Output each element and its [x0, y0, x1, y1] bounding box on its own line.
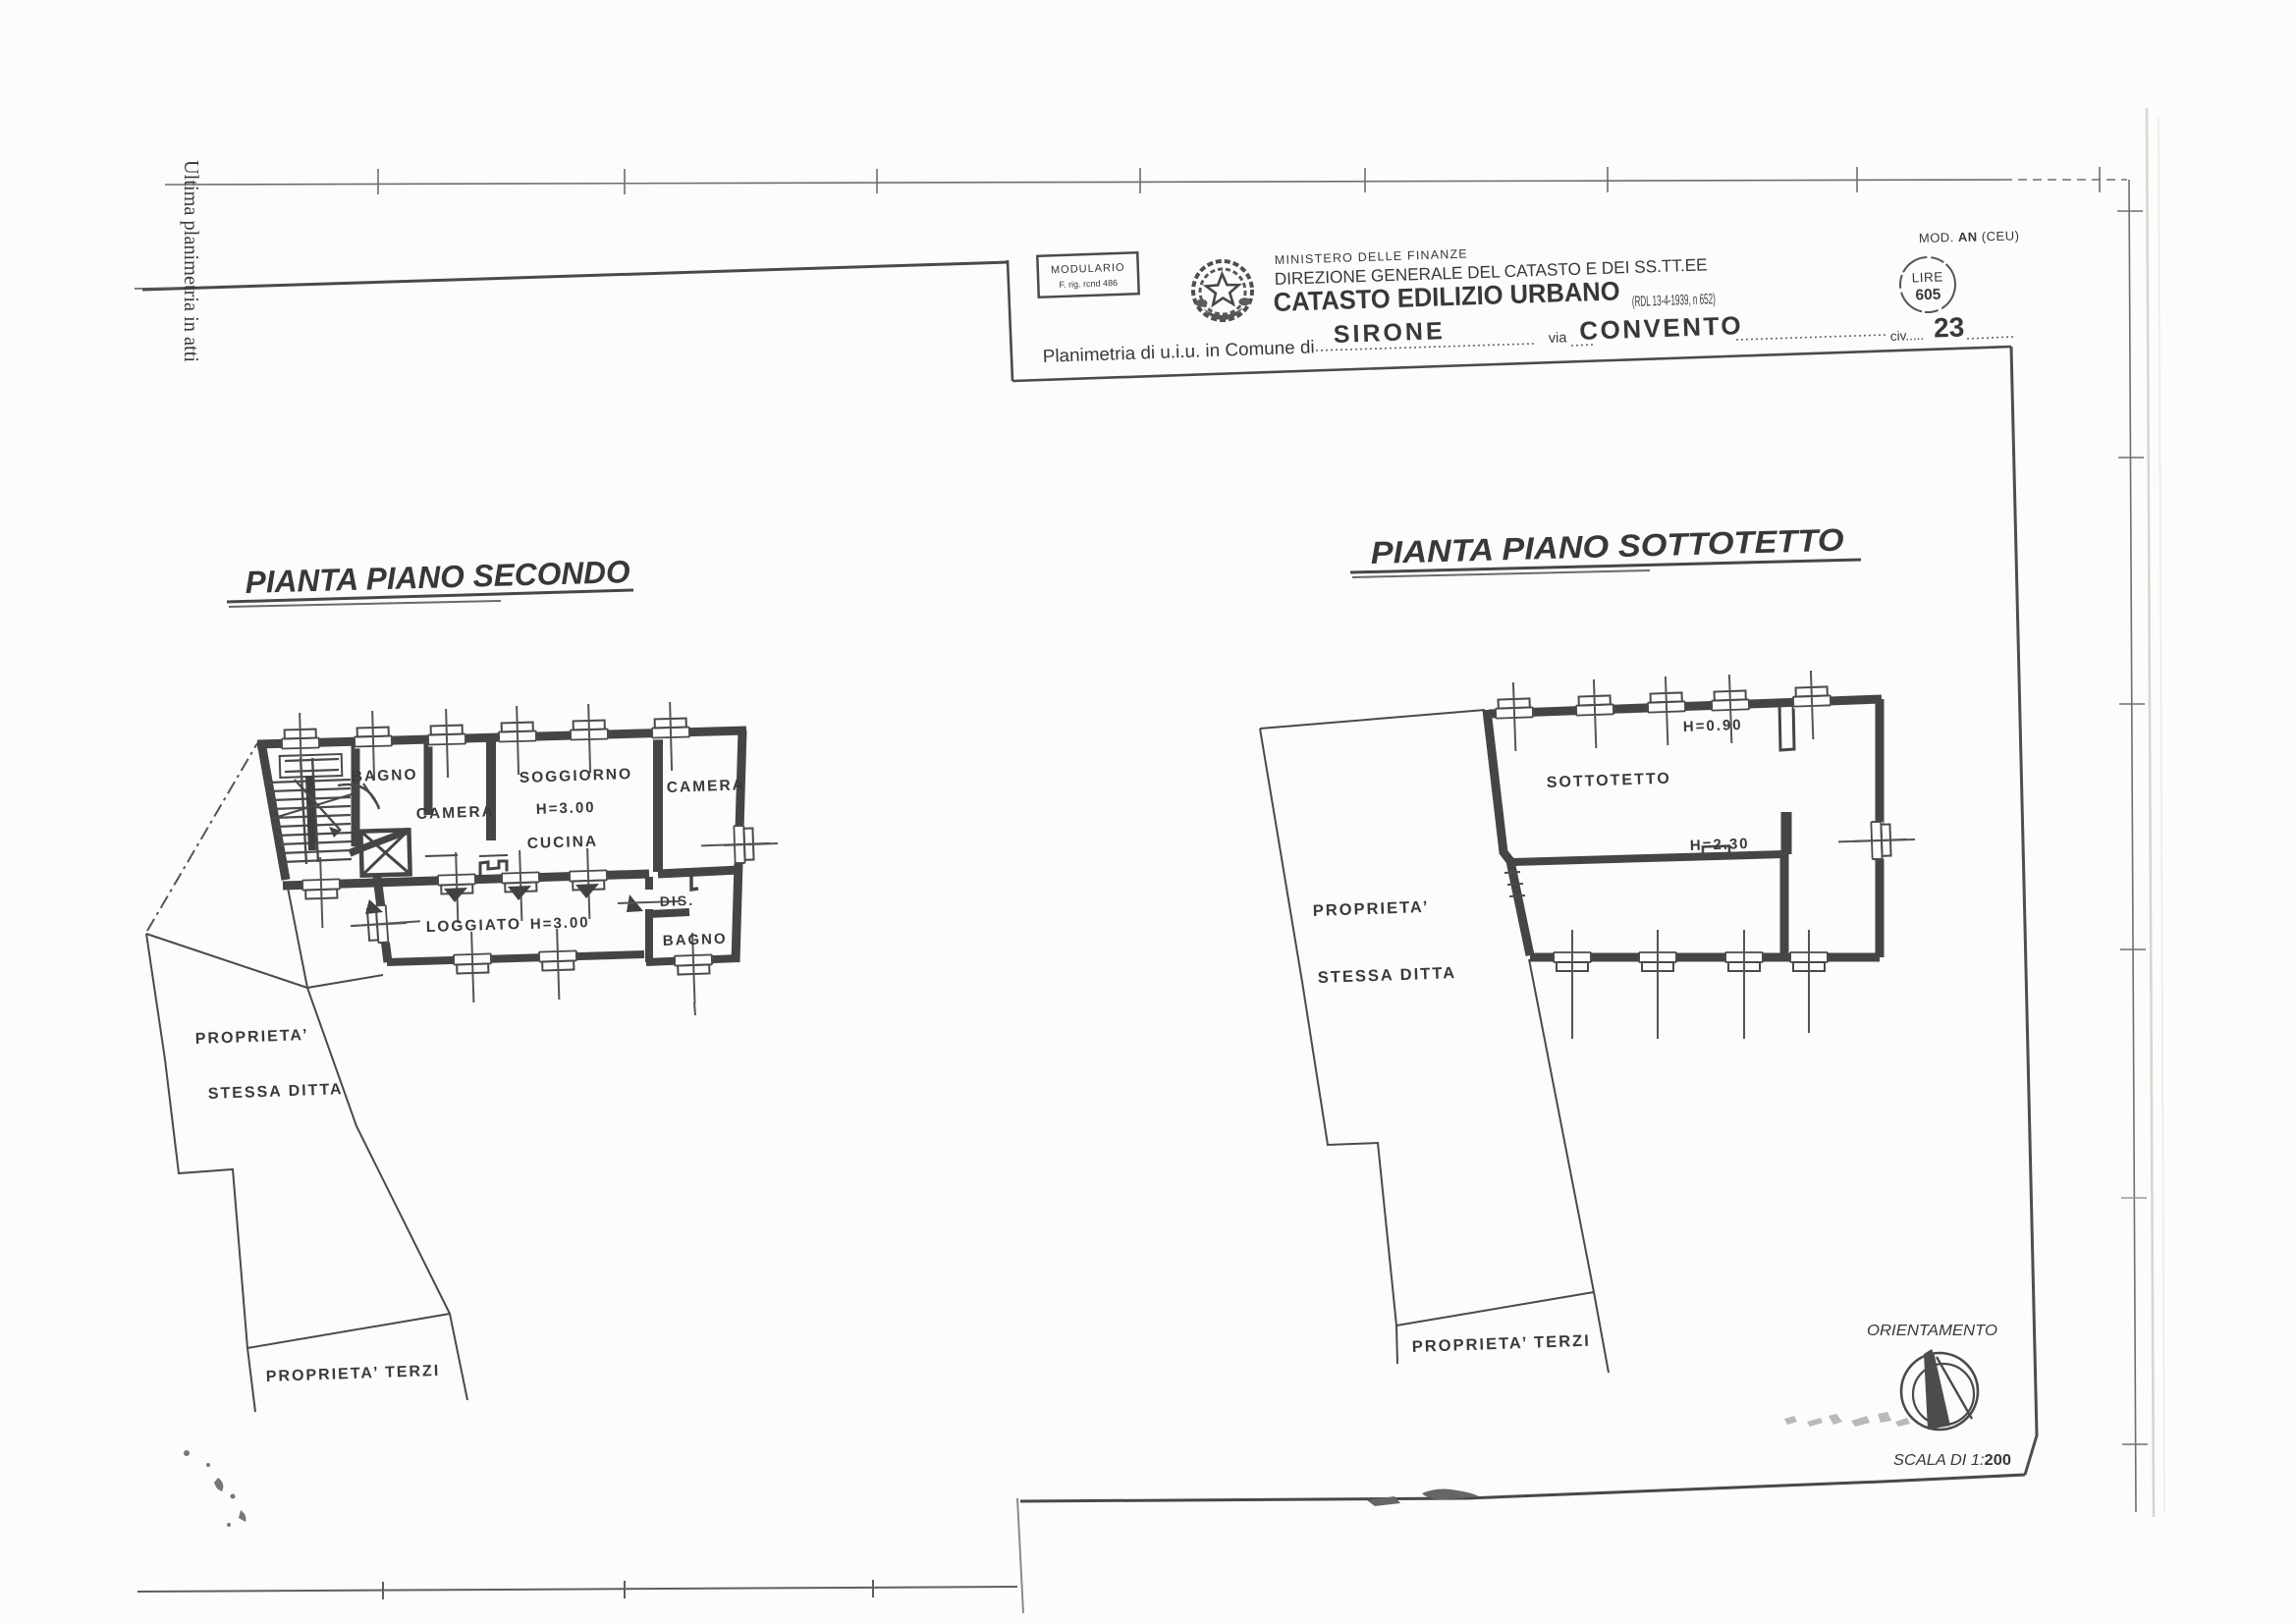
svg-text:CUCINA: CUCINA	[527, 833, 599, 852]
svg-text:BAGNO: BAGNO	[352, 767, 418, 785]
svg-text:DIS.: DIS.	[660, 893, 695, 909]
svg-text:ORIENTAMENTO: ORIENTAMENTO	[1867, 1323, 1997, 1339]
svg-text:(RDL 13-4-1939, n 652): (RDL 13-4-1939, n 652)	[1632, 291, 1717, 310]
svg-text:CAMERA: CAMERA	[416, 803, 496, 823]
svg-text:605: 605	[1915, 287, 1941, 304]
svg-text:Ultima planimetria in atti: Ultima planimetria in atti	[180, 160, 203, 362]
svg-text:23: 23	[1934, 311, 1965, 343]
svg-text:LOGGIATO: LOGGIATO	[426, 916, 522, 936]
svg-text:CAMERA: CAMERA	[667, 777, 746, 796]
svg-text:MOD. AN (CEU): MOD. AN (CEU)	[1919, 228, 2020, 245]
svg-text:F. rig. rcnd 486: F. rig. rcnd 486	[1059, 278, 1118, 290]
svg-text:SCALA DI 1:200: SCALA DI 1:200	[1893, 1452, 2011, 1469]
svg-text:H=2.30: H=2.30	[1690, 836, 1750, 854]
svg-text:CONVENTO: CONVENTO	[1579, 310, 1744, 346]
svg-text:via: via	[1549, 330, 1568, 347]
svg-text:SIRONE: SIRONE	[1333, 317, 1446, 349]
svg-text:LIRE: LIRE	[1911, 269, 1943, 285]
svg-text:BAGNO: BAGNO	[663, 931, 728, 949]
svg-text:H=3.00: H=3.00	[536, 799, 596, 818]
svg-text:H=3.00: H=3.00	[530, 914, 590, 933]
svg-text:H=0.90: H=0.90	[1683, 717, 1743, 735]
svg-text:civ.....: civ.....	[1890, 328, 1925, 344]
